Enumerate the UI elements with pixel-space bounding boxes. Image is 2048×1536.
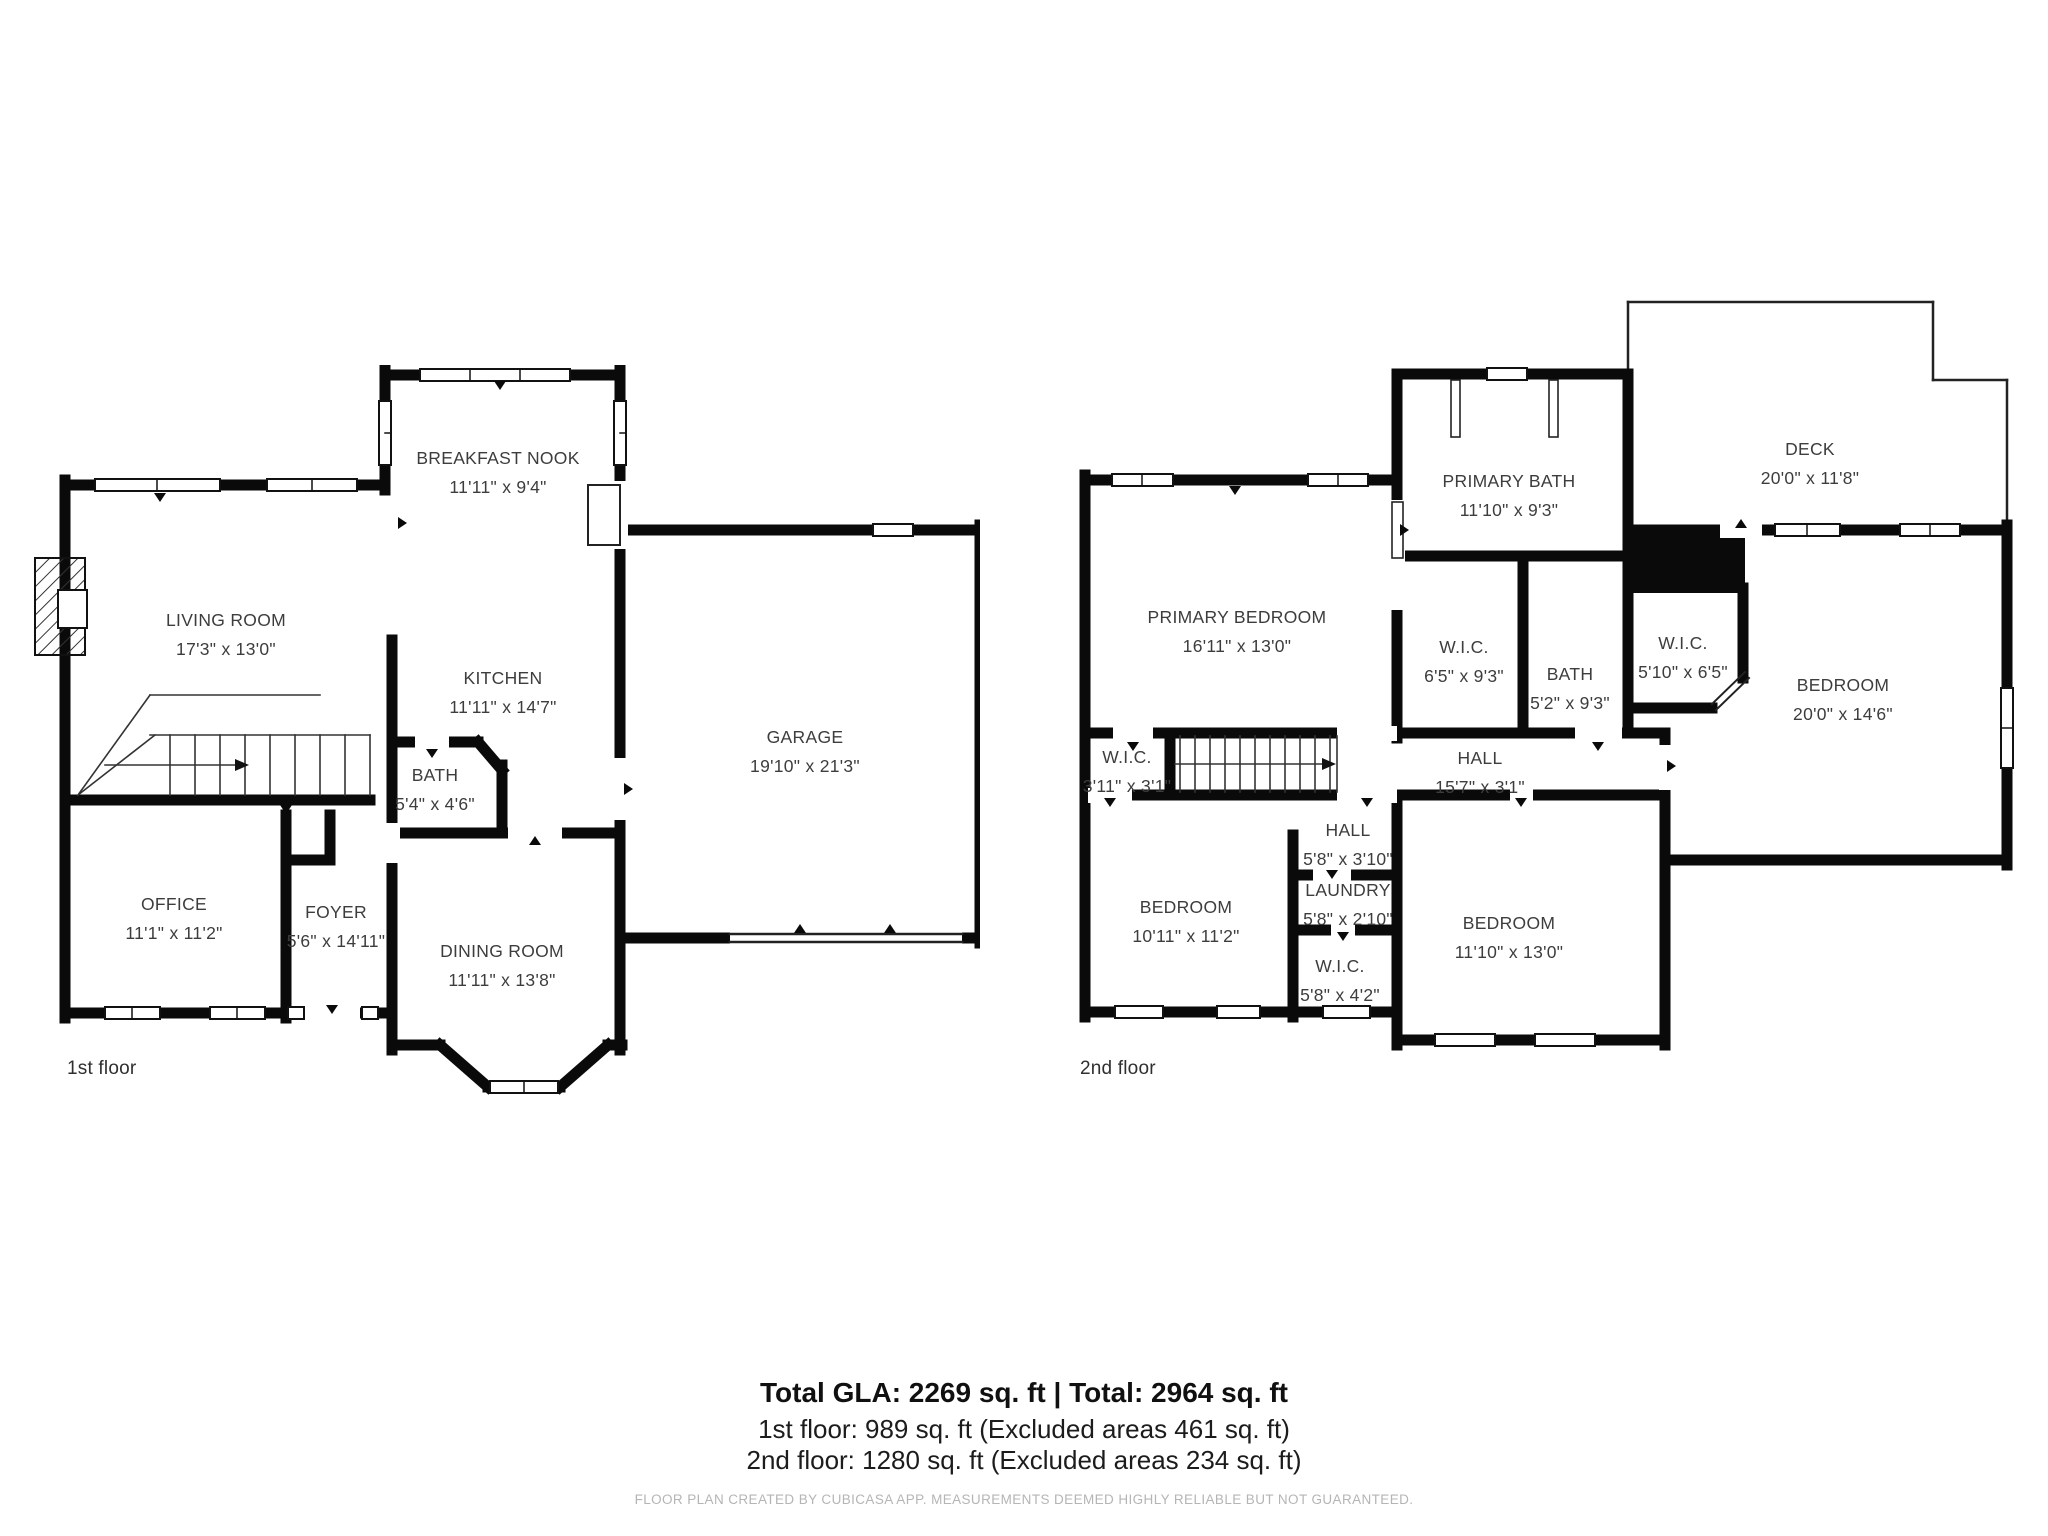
room-dims: 5'8" x 2'10" xyxy=(1303,905,1393,934)
room-label-garage: GARAGE 19'10" x 21'3" xyxy=(750,723,860,781)
room-label-bedroom-right: BEDROOM 20'0" x 14'6" xyxy=(1793,671,1893,729)
room-name: OFFICE xyxy=(125,890,222,919)
summary-total: Total GLA: 2269 sq. ft | Total: 2964 sq.… xyxy=(0,1372,2048,1414)
room-name: BEDROOM xyxy=(1132,893,1239,922)
room-label-breakfast-nook: BREAKFAST NOOK 11'11" x 9'4" xyxy=(416,444,579,502)
room-name: BREAKFAST NOOK xyxy=(416,444,579,473)
room-label-primary-bath: PRIMARY BATH 11'10" x 9'3" xyxy=(1443,467,1576,525)
room-name: PRIMARY BATH xyxy=(1443,467,1576,496)
summary-floor1: 1st floor: 989 sq. ft (Excluded areas 46… xyxy=(0,1414,2048,1445)
room-label-foyer: FOYER 5'6" x 14'11" xyxy=(287,898,386,956)
room-name: KITCHEN xyxy=(449,664,556,693)
stairs-first-floor xyxy=(78,695,370,795)
room-name: BEDROOM xyxy=(1455,909,1564,938)
room-label-bath-1: BATH 5'4" x 4'6" xyxy=(395,761,475,819)
room-dims: 5'2" x 9'3" xyxy=(1530,689,1610,718)
room-dims: 20'0" x 14'6" xyxy=(1793,700,1893,729)
room-label-office: OFFICE 11'1" x 11'2" xyxy=(125,890,222,948)
room-dims: 6'5" x 9'3" xyxy=(1424,662,1504,691)
room-label-laundry: LAUNDRY 5'8" x 2'10" xyxy=(1303,876,1393,934)
room-name: DECK xyxy=(1761,435,1860,464)
room-dims: 11'11" x 14'7" xyxy=(449,693,556,722)
room-dims: 16'11" x 13'0" xyxy=(1148,632,1327,661)
room-label-primary-bedroom: PRIMARY BEDROOM 16'11" x 13'0" xyxy=(1148,603,1327,661)
room-label-bedroom-bottom: BEDROOM 11'10" x 13'0" xyxy=(1455,909,1564,967)
room-label-wic-primary: W.I.C. 6'5" x 9'3" xyxy=(1424,633,1504,691)
room-label-bath-2: BATH 5'2" x 9'3" xyxy=(1530,660,1610,718)
room-dims: 11'11" x 13'8" xyxy=(440,966,564,995)
room-label-bedroom-left: BEDROOM 10'11" x 11'2" xyxy=(1132,893,1239,951)
room-name: PRIMARY BEDROOM xyxy=(1148,603,1327,632)
room-dims: 19'10" x 21'3" xyxy=(750,752,860,781)
stairs-up-arrow xyxy=(235,759,249,771)
room-label-kitchen: KITCHEN 11'11" x 14'7" xyxy=(449,664,556,722)
room-label-wic-bottom: W.I.C. 5'8" x 4'2" xyxy=(1300,952,1380,1010)
room-label-deck: DECK 20'0" x 11'8" xyxy=(1761,435,1860,493)
room-dims: 5'6" x 14'11" xyxy=(287,927,386,956)
room-label-hall: HALL 15'7" x 3'1" xyxy=(1435,744,1525,802)
closet-box xyxy=(588,485,620,545)
primary-bath-fixtures xyxy=(1451,380,1558,437)
room-dims: 3'11" x 3'1" xyxy=(1083,772,1172,801)
room-dims: 11'10" x 9'3" xyxy=(1443,496,1576,525)
room-dims: 11'1" x 11'2" xyxy=(125,919,222,948)
room-name: FOYER xyxy=(287,898,386,927)
chimney-block xyxy=(1625,533,1745,593)
room-name: W.I.C. xyxy=(1300,952,1380,981)
room-dims: 11'10" x 13'0" xyxy=(1455,938,1564,967)
room-name: GARAGE xyxy=(750,723,860,752)
room-dims: 5'8" x 4'2" xyxy=(1300,981,1380,1010)
area-summary: Total GLA: 2269 sq. ft | Total: 2964 sq.… xyxy=(0,1372,2048,1476)
room-label-dining-room: DINING ROOM 11'11" x 13'8" xyxy=(440,937,564,995)
floor1-caption: 1st floor xyxy=(67,1058,136,1080)
room-name: W.I.C. xyxy=(1424,633,1504,662)
room-name: LAUNDRY xyxy=(1303,876,1393,905)
disclaimer-text: FLOOR PLAN CREATED BY CUBICASA APP. MEAS… xyxy=(0,1492,2048,1507)
room-dims: 11'11" x 9'4" xyxy=(416,473,579,502)
room-dims: 15'7" x 3'1" xyxy=(1435,773,1525,802)
room-name: BATH xyxy=(395,761,475,790)
floor2-caption: 2nd floor xyxy=(1080,1058,1156,1080)
room-dims: 5'10" x 6'5" xyxy=(1638,658,1728,687)
fireplace xyxy=(35,558,87,655)
room-label-wic-corner: W.I.C. 5'10" x 6'5" xyxy=(1638,629,1728,687)
room-label-hall-small: HALL 5'8" x 3'10" xyxy=(1303,816,1393,874)
room-dims: 17'3" x 13'0" xyxy=(166,635,286,664)
summary-floor2: 2nd floor: 1280 sq. ft (Excluded areas 2… xyxy=(0,1445,2048,1476)
stairs-up-arrow-2 xyxy=(1322,758,1336,770)
floorplan-canvas: BREAKFAST NOOK 11'11" x 9'4" LIVING ROOM… xyxy=(0,0,2048,1536)
room-name: BATH xyxy=(1530,660,1610,689)
room-dims: 10'11" x 11'2" xyxy=(1132,922,1239,951)
room-label-living-room: LIVING ROOM 17'3" x 13'0" xyxy=(166,606,286,664)
room-label-wic-hall: W.I.C. 3'11" x 3'1" xyxy=(1083,743,1172,801)
stairs-second-floor xyxy=(1175,736,1337,792)
room-dims: 5'8" x 3'10" xyxy=(1303,845,1393,874)
room-name: HALL xyxy=(1303,816,1393,845)
room-dims: 5'4" x 4'6" xyxy=(395,790,475,819)
room-name: W.I.C. xyxy=(1083,743,1172,772)
room-name: LIVING ROOM xyxy=(166,606,286,635)
room-name: BEDROOM xyxy=(1793,671,1893,700)
room-dims: 20'0" x 11'8" xyxy=(1761,464,1860,493)
room-name: DINING ROOM xyxy=(440,937,564,966)
room-name: W.I.C. xyxy=(1638,629,1728,658)
room-name: HALL xyxy=(1435,744,1525,773)
deck-railing xyxy=(1628,302,2007,530)
